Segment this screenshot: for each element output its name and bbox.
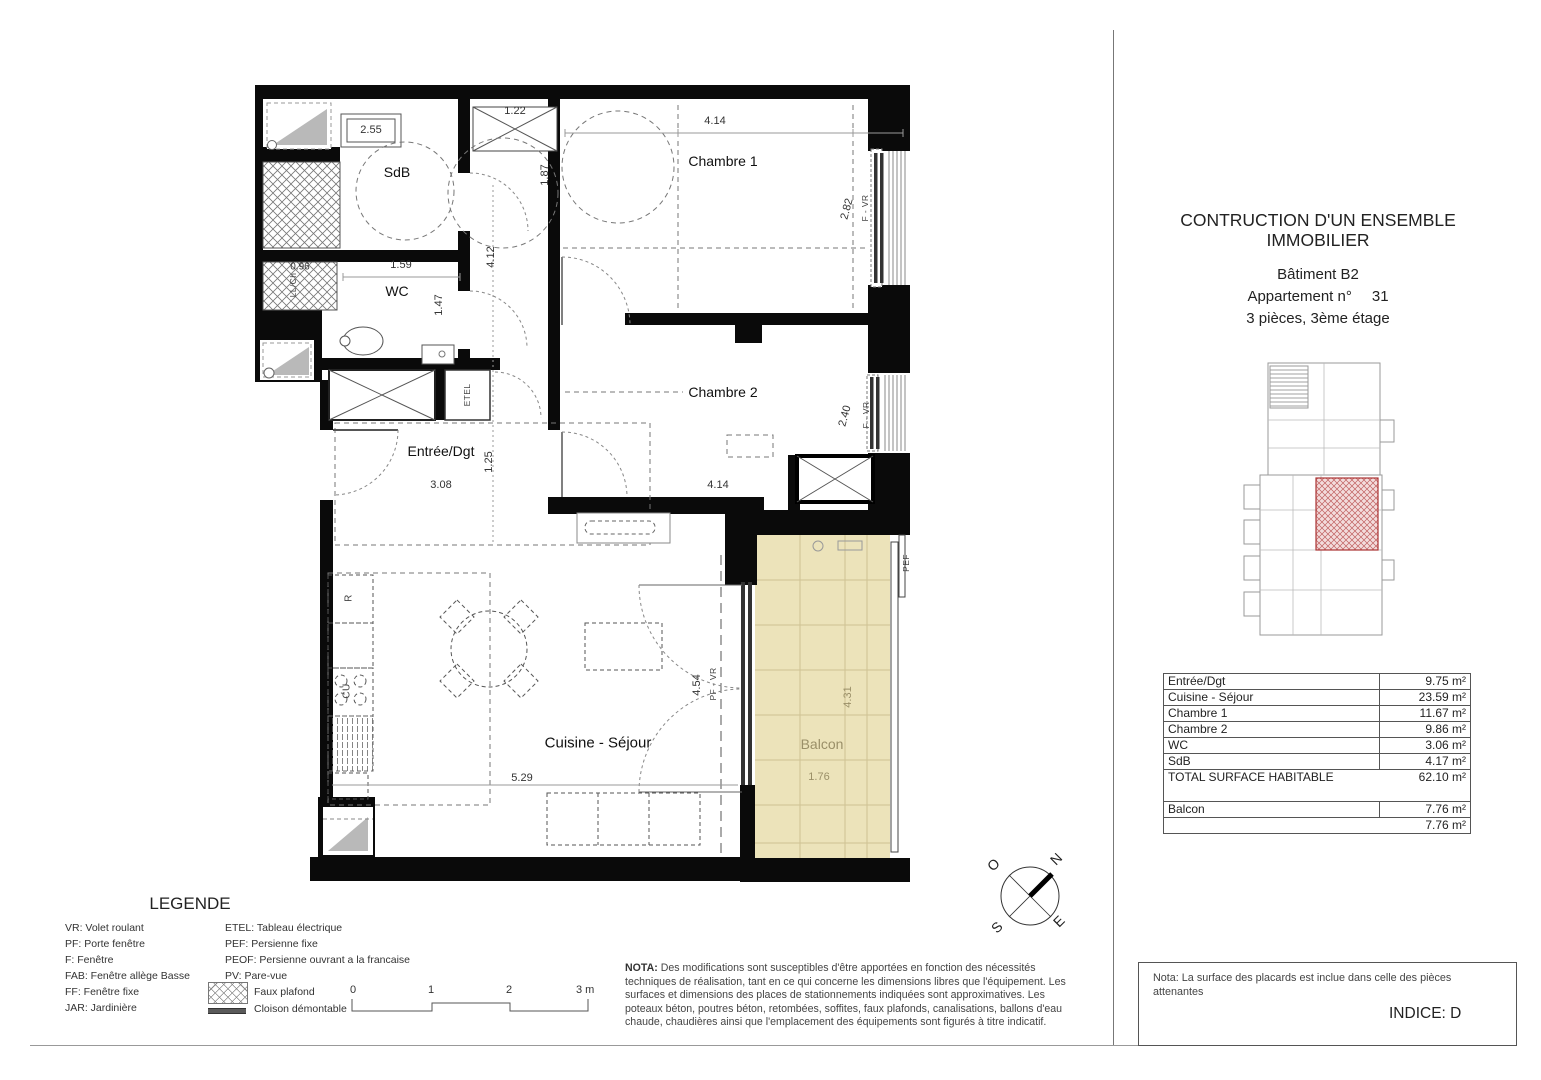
legend-item: JAR: Jardinière xyxy=(65,1000,190,1016)
legend-item: PF: Porte fenêtre xyxy=(65,936,190,952)
room-label-entree: Entrée/Dgt xyxy=(408,443,475,459)
footer-note-box: Nota: La surface des placards est inclue… xyxy=(1138,962,1517,1046)
legend-item: F: Fenêtre xyxy=(65,952,190,968)
cloison-label: Cloison démontable xyxy=(254,1003,347,1015)
dimension-label: 1.22 xyxy=(504,105,525,117)
dimension-label: 4.14 xyxy=(707,479,728,491)
toilet-symbol xyxy=(340,327,383,355)
apartment-number: 31 xyxy=(1372,288,1389,305)
window-tag-fvr1: F - VR xyxy=(860,195,870,222)
balcon-total-value: 7.76 m² xyxy=(1380,818,1470,833)
faux-plafond-hatch-1 xyxy=(263,162,340,248)
room-label-chambre2: Chambre 2 xyxy=(688,384,757,400)
faux-plafond-swatch xyxy=(208,982,248,1004)
footer-note: Nota: La surface des placards est inclue… xyxy=(1153,972,1453,999)
compass-north-label: N xyxy=(1047,850,1065,868)
legend-item: FAB: Fenêtre allège Basse xyxy=(65,968,190,984)
plan-sheet: SdB WC Chambre 1 Chambre 2 Entrée/Dgt Cu… xyxy=(0,0,1541,1080)
total-value: 62.10 m² xyxy=(1380,770,1470,801)
washbasin-symbol xyxy=(422,345,454,364)
dimension-label: 2.55 xyxy=(360,124,381,136)
sideboard-symbol xyxy=(577,513,670,543)
dimension-label: 4.14 xyxy=(704,115,725,127)
window-chambre1 xyxy=(871,149,908,287)
legend-column-2: ETEL: Tableau électrique PEF: Persienne … xyxy=(225,920,410,984)
row-value: 3.06 m² xyxy=(1379,738,1470,753)
room-label-wc: WC xyxy=(385,283,408,299)
apartment-label: Appartement n° xyxy=(1247,288,1351,305)
window-tag-fvr2: F - VR xyxy=(861,402,871,429)
balcony-slab xyxy=(755,535,890,858)
floor-label: 3 pièces, 3ème étage xyxy=(1120,308,1516,330)
dimension-label: 4.31 xyxy=(842,686,854,707)
shaft-symbol-mid xyxy=(260,340,314,380)
dimension-label: 1.87 xyxy=(539,164,551,185)
table-row-total: TOTAL SURFACE HABITABLE 62.10 m² xyxy=(1164,769,1470,801)
window-tag-pfvr: PF - VR xyxy=(708,667,718,700)
table-row: WC 3.06 m² xyxy=(1164,737,1470,753)
furniture-dashed xyxy=(328,575,700,845)
apartment-highlight xyxy=(1316,478,1378,550)
dimension-label: 1.76 xyxy=(808,771,829,783)
compass-rose: O N S E xyxy=(980,850,1080,945)
row-value: 23.59 m² xyxy=(1379,690,1470,705)
row-label: SdB xyxy=(1164,754,1379,769)
row-value: 9.86 m² xyxy=(1379,722,1470,737)
compass-east-label: E xyxy=(1050,912,1068,930)
compass-west-label: O xyxy=(984,855,1003,874)
legend: LEGENDE VR: Volet roulant PF: Porte fenê… xyxy=(60,894,630,1049)
dimension-label: 4.12 xyxy=(485,246,497,267)
table-row: SdB 4.17 m² xyxy=(1164,753,1470,769)
room-label-sejour: Cuisine - Séjour xyxy=(545,735,652,752)
room-label-sdb: SdB xyxy=(384,164,410,180)
row-value: 4.17 m² xyxy=(1379,754,1470,769)
table-row: Chambre 2 9.86 m² xyxy=(1164,721,1470,737)
legend-item: VR: Volet roulant xyxy=(65,920,190,936)
dimension-label: 0.96 xyxy=(290,262,309,273)
etel-tag: ETEL xyxy=(462,384,472,407)
closet-crossed-entree xyxy=(329,370,435,420)
table-row: Entrée/Dgt 9.75 m² xyxy=(1164,674,1470,689)
surface-table: Entrée/Dgt 9.75 m² Cuisine - Séjour 23.5… xyxy=(1163,673,1471,834)
dimension-label: 1.59 xyxy=(390,259,411,271)
row-label: WC xyxy=(1164,738,1379,753)
legend-column-1: VR: Volet roulant PF: Porte fenêtre F: F… xyxy=(65,920,190,1016)
nota-text: Des modifications sont susceptibles d'êt… xyxy=(625,962,1066,1028)
room-label-chambre1: Chambre 1 xyxy=(688,153,757,169)
table-row: Chambre 1 11.67 m² xyxy=(1164,705,1470,721)
table-row: Cuisine - Séjour 23.59 m² xyxy=(1164,689,1470,705)
indice-label: INDICE: D xyxy=(1389,1005,1461,1023)
row-label: Chambre 2 xyxy=(1164,722,1379,737)
balcony-railing-pef xyxy=(891,535,905,852)
railing-tag-pef: PEF xyxy=(901,554,911,572)
shaft-symbol-top xyxy=(267,103,331,150)
dimension-label: 5.29 xyxy=(511,772,532,784)
project-title-line2: IMMOBILIER xyxy=(1120,230,1516,250)
kitchen-drainboard xyxy=(328,716,373,771)
washer-tag: LL/Ch xyxy=(288,273,298,298)
building-label: Bâtiment B2 xyxy=(1120,264,1516,286)
legend-item: PEF: Persienne fixe xyxy=(225,936,410,952)
faux-plafond-label: Faux plafond xyxy=(254,986,315,998)
balcon-value: 7.76 m² xyxy=(1379,802,1470,817)
row-value: 9.75 m² xyxy=(1379,674,1470,689)
legend-item: PV: Pare-vue xyxy=(225,968,410,984)
apartment-line: Appartement n°31 xyxy=(1120,286,1516,308)
panel-divider xyxy=(1113,30,1114,1046)
dimension-label: 3.08 xyxy=(430,479,451,491)
table-row-balcon-total: 7.76 m² xyxy=(1164,817,1470,833)
shaft-symbol-bottom xyxy=(323,807,373,855)
row-label: Entrée/Dgt xyxy=(1164,674,1379,689)
closet-crossed-dressing xyxy=(797,456,873,502)
dimension-label: 1.47 xyxy=(433,294,445,315)
cooktop-tag: CU xyxy=(342,683,353,698)
dimension-label: 1.25 xyxy=(483,451,495,472)
title-block: CONTRUCTION D'UN ENSEMBLE IMMOBILIER Bât… xyxy=(1120,210,1516,330)
balcon-label: Balcon xyxy=(1164,802,1379,817)
cloison-swatch xyxy=(208,1008,246,1014)
table-row-balcon: Balcon 7.76 m² xyxy=(1164,801,1470,817)
legend-item: FF: Fenêtre fixe xyxy=(65,984,190,1000)
total-label: TOTAL SURFACE HABITABLE xyxy=(1164,770,1380,801)
row-label: Chambre 1 xyxy=(1164,706,1379,721)
nota-block: NOTA: Des modifications sont susceptible… xyxy=(625,962,1077,1030)
fridge-tag: R xyxy=(344,594,355,602)
window-chambre2 xyxy=(867,375,908,451)
legend-title: LEGENDE xyxy=(149,894,230,914)
row-label: Cuisine - Séjour xyxy=(1164,690,1379,705)
row-value: 11.67 m² xyxy=(1379,706,1470,721)
floor-plan: SdB WC Chambre 1 Chambre 2 Entrée/Dgt Cu… xyxy=(255,85,915,900)
dimension-label: 4.54 xyxy=(691,674,703,695)
compass-south-label: S xyxy=(988,918,1006,936)
key-plan xyxy=(1238,360,1403,640)
legend-item: PEOF: Persienne ouvrant a la francaise xyxy=(225,952,410,968)
nota-label: NOTA: xyxy=(625,962,658,974)
project-title-line1: CONTRUCTION D'UN ENSEMBLE xyxy=(1120,210,1516,230)
legend-item: ETEL: Tableau électrique xyxy=(225,920,410,936)
room-label-balcon: Balcon xyxy=(801,736,844,752)
